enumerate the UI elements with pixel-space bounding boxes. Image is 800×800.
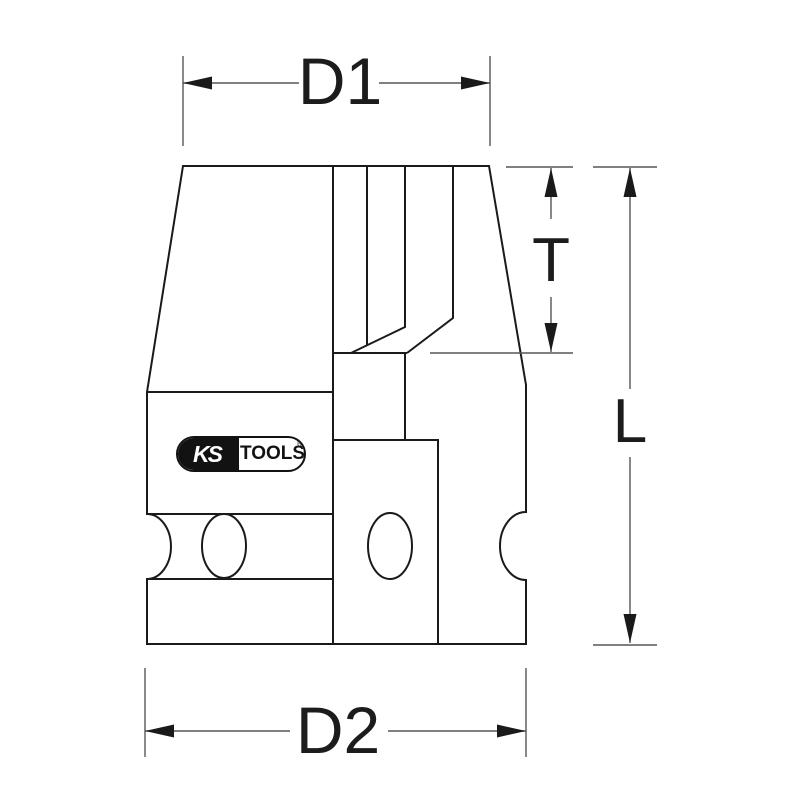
l-arrow-down — [624, 614, 637, 643]
dimension-d2: D2 — [145, 668, 526, 767]
kstools-logo: KS TOOLS ® — [176, 436, 306, 472]
drawing-canvas: D1 T L D — [0, 0, 800, 800]
dimension-label-d1: D1 — [298, 44, 382, 118]
dimension-l: L — [593, 167, 657, 645]
dimension-label-t: T — [532, 226, 570, 295]
socket-body — [147, 166, 526, 644]
kstools-logo-tools-label: TOOLS — [240, 443, 305, 465]
dimension-d1: D1 — [183, 44, 490, 146]
dimension-t: T — [430, 167, 573, 353]
l-arrow-up — [624, 168, 637, 197]
dimension-label-d2: D2 — [296, 693, 380, 767]
dimension-label-l: L — [613, 387, 647, 456]
pin-hole-left — [202, 514, 246, 578]
d2-arrow-right — [497, 725, 526, 738]
d2-arrow-left — [145, 725, 174, 738]
d1-arrow-right — [461, 77, 490, 90]
hex-edge-line-2 — [351, 166, 405, 353]
socket-diagram: D1 T L D — [0, 0, 800, 800]
pin-hole-right — [368, 513, 412, 579]
t-arrow-up — [545, 168, 558, 197]
kstools-logo-ks-mark: KS — [178, 438, 239, 470]
kstools-logo-tools-text: TOOLS ® — [239, 438, 305, 470]
drive-square-cavity — [333, 440, 438, 644]
t-arrow-down — [545, 323, 558, 352]
socket-outline — [147, 166, 526, 644]
d1-arrow-left — [183, 77, 212, 90]
hex-edge-line-3 — [407, 166, 453, 353]
registered-trademark-icon: ® — [297, 441, 302, 448]
